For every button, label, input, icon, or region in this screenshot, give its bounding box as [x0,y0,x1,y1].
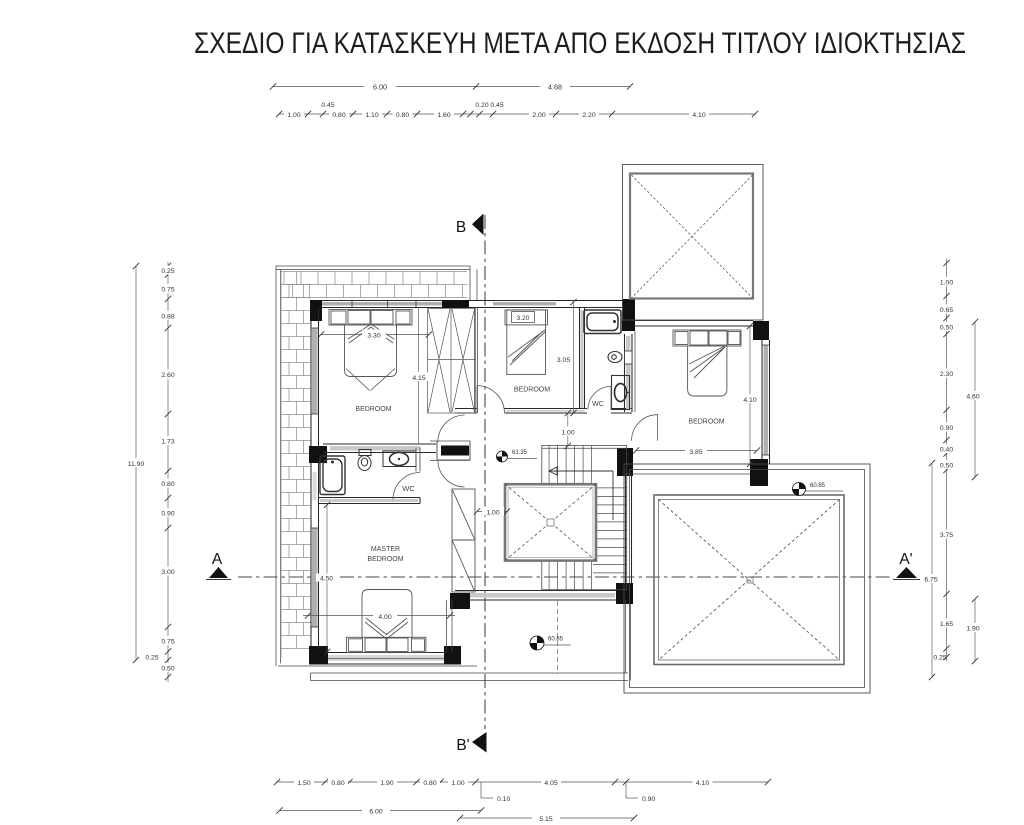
svg-text:0.80: 0.80 [396,112,409,119]
svg-text:1.00: 1.00 [287,112,300,119]
svg-text:1.65: 1.65 [940,621,953,628]
svg-text:0.50: 0.50 [940,463,953,470]
svg-text:0.90: 0.90 [940,425,953,432]
svg-text:2.60: 2.60 [161,372,174,379]
svg-text:A': A' [899,551,912,568]
svg-text:0.80: 0.80 [423,780,436,787]
svg-text:60.85: 60.85 [810,483,826,489]
svg-text:WC: WC [592,401,604,408]
svg-text:4.15: 4.15 [412,375,425,382]
svg-text:BEDROOM: BEDROOM [367,556,403,563]
svg-text:0.65: 0.65 [940,307,953,314]
svg-text:BEDROOM: BEDROOM [514,387,550,394]
svg-text:60.85: 60.85 [548,637,564,643]
svg-text:3.30: 3.30 [367,333,380,340]
svg-text:0.50: 0.50 [161,666,174,673]
svg-text:0.50: 0.50 [940,325,953,332]
svg-text:BEDROOM: BEDROOM [688,419,724,426]
svg-text:2.30: 2.30 [940,371,953,378]
svg-text:2.20: 2.20 [582,112,595,119]
svg-text:4.10: 4.10 [696,780,709,787]
svg-text:1.50: 1.50 [297,780,310,787]
svg-text:0.80: 0.80 [161,481,174,488]
svg-text:BEDROOM: BEDROOM [355,406,391,413]
svg-text:1.00: 1.00 [561,430,574,437]
svg-text:5.15: 5.15 [539,816,552,823]
svg-text:4.68: 4.68 [548,83,562,92]
svg-text:1.00: 1.00 [451,780,464,787]
svg-text:ΣΧΕΔΙΟ ΓΙΑ ΚΑΤΑΣΚΕΥΗ ΜΕΤΑ ΑΠΟ: ΣΧΕΔΙΟ ΓΙΑ ΚΑΤΑΣΚΕΥΗ ΜΕΤΑ ΑΠΟ ΕΚΔΟΣΗ ΤΙΤ… [194,27,966,60]
svg-text:A: A [212,551,223,568]
svg-text:61.35: 61.35 [512,450,528,456]
svg-text:B': B' [456,737,469,754]
svg-text:1.10: 1.10 [365,112,378,119]
svg-text:0.90: 0.90 [642,796,655,803]
svg-text:4.60: 4.60 [966,394,979,401]
svg-text:6.00: 6.00 [369,809,382,816]
svg-text:4.50: 4.50 [320,576,333,583]
svg-text:6.00: 6.00 [373,83,387,92]
svg-text:1.90: 1.90 [966,626,979,633]
svg-text:B: B [456,219,466,236]
svg-text:4.00: 4.00 [378,614,391,621]
svg-text:3.20: 3.20 [517,315,530,322]
svg-text:0.88: 0.88 [161,314,174,321]
svg-text:0.45: 0.45 [321,102,334,109]
svg-text:0.25: 0.25 [933,655,946,662]
svg-text:11.90: 11.90 [128,461,145,468]
svg-text:4.05: 4.05 [544,780,557,787]
svg-text:0.10: 0.10 [497,796,510,803]
svg-text:1.00: 1.00 [486,510,499,517]
svg-text:0.80: 0.80 [332,112,345,119]
svg-text:1.73: 1.73 [161,439,174,446]
svg-text:0.75: 0.75 [161,287,174,294]
svg-text:3.85: 3.85 [689,449,702,456]
svg-text:0.90: 0.90 [161,511,174,518]
svg-text:6.75: 6.75 [924,577,937,584]
svg-text:WC: WC [402,484,415,493]
svg-text:1.60: 1.60 [437,112,450,119]
svg-text:MASTER: MASTER [371,546,400,553]
svg-text:3.05: 3.05 [557,357,570,364]
svg-text:3.75: 3.75 [940,532,953,539]
svg-text:4.10: 4.10 [743,397,756,404]
svg-text:0.25: 0.25 [161,268,174,275]
svg-text:1.90: 1.90 [380,780,393,787]
svg-text:3.00: 3.00 [161,569,174,576]
svg-text:0.75: 0.75 [161,639,174,646]
svg-text:0.45: 0.45 [490,102,503,109]
svg-text:0.20: 0.20 [475,102,488,109]
svg-text:0.25: 0.25 [145,655,158,662]
svg-text:2.00: 2.00 [532,112,545,119]
svg-text:4.10: 4.10 [692,112,705,119]
svg-text:1.00: 1.00 [940,280,953,287]
svg-text:0.40: 0.40 [940,447,953,454]
svg-text:0.80: 0.80 [331,780,344,787]
